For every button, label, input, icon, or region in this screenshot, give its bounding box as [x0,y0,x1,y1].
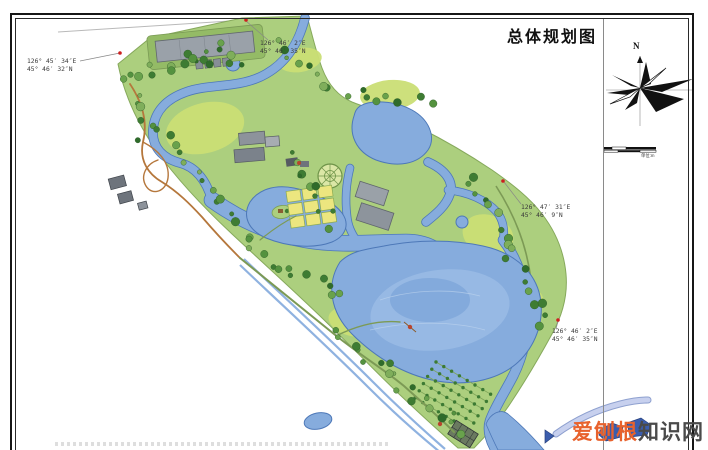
site-plan-map [0,0,708,450]
watermark-part2: 知识网 [638,421,704,444]
coordinate-label-n: 126° 46′ 2″E 45° 46′ 35″N [260,40,306,55]
small-pond [456,216,468,228]
watermark-site-name: 爱刨根知识网 [572,416,704,446]
drawing-sheet: 总体规划图 N 单位:m 126° 45′ 34″E 45° 46′ 32″N … [0,0,708,450]
compass-rose [606,56,693,126]
west-pond [303,410,334,431]
circular-garden [318,164,342,188]
coordinate-label-e: 126° 47′ 31″E 45° 46′ 9″N [521,204,570,219]
coordinate-line: 126° 46′ 2″E [552,328,598,336]
coordinate-line: 45° 46′ 35″N [260,48,306,56]
cutoff-caption [55,442,390,446]
scale-unit-label: 单位:m [641,152,654,158]
coordinate-line: 126° 46′ 2″E [260,40,306,48]
frame-right-inner [688,18,689,450]
frame-top-outer [10,13,694,15]
coordinate-line: 45° 46′ 9″N [521,212,570,220]
garden-plots [286,185,337,228]
frame-left-inner [15,18,16,450]
frame-top-inner [15,18,689,19]
coordinate-line: 126° 47′ 31″E [521,204,570,212]
coordinate-line: 45° 46′ 32″N [27,66,76,74]
coordinate-line: 45° 46′ 35″N [552,336,598,344]
coordinate-label-se: 126° 46′ 2″E 45° 46′ 35″N [552,328,598,343]
page-title: 总体规划图 [500,23,604,47]
watermark-part1: 爱刨根 [572,421,638,444]
coordinate-label-nw: 126° 45′ 34″E 45° 46′ 32″N [27,58,76,73]
coordinate-line: 126° 45′ 34″E [27,58,76,66]
frame-left-outer [10,13,12,450]
north-label: N [633,41,640,51]
frame-right-outer [692,13,694,450]
west-buildings [108,171,148,216]
title-column-divider [603,19,604,450]
